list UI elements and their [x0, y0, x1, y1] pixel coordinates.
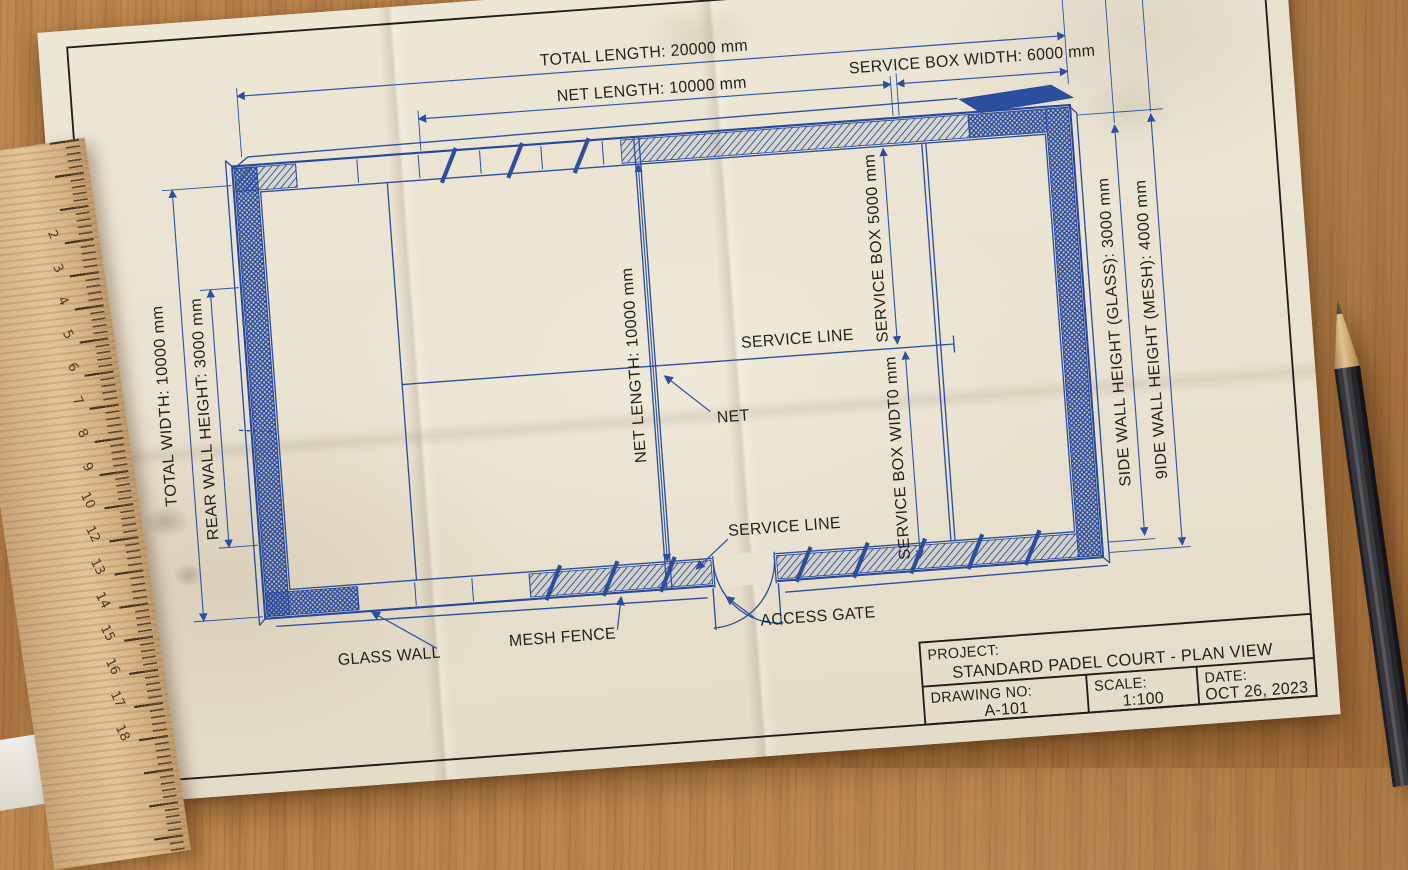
title-block-drawing-no-value: A-101 [984, 699, 1029, 720]
ruler-number: 17 [107, 689, 128, 711]
ruler-number: 6 [64, 360, 81, 374]
service-line-left [387, 183, 416, 581]
service-line-right [922, 143, 951, 541]
dim-total-length-label: TOTAL LENGTH: 20000 mm [539, 36, 748, 69]
callout-service-line-bottom: SERVICE LINE [728, 514, 842, 540]
ruler-number: 14 [92, 589, 113, 611]
ruler-number: 13 [87, 556, 108, 578]
dim-service-box-label: SERVICE BOX 5000 mm [860, 153, 892, 343]
title-block: PROJECT: STANDARD PADEL COURT - PLAN VIE… [919, 614, 1316, 725]
center-service-line [402, 344, 954, 385]
callout-leaders [356, 371, 755, 653]
desk-scene: { "drawing": { "dims": { "total_length":… [0, 0, 1408, 768]
ruler-number: 7 [69, 394, 86, 408]
ruler-number: 3 [49, 261, 66, 275]
callout-service-line-mid: SERVICE LINE [740, 326, 854, 352]
dim-total-width-label: TOTAL WIDTH: 10000 mm [148, 305, 180, 507]
pencil-body [1334, 366, 1408, 788]
ruler-number: 4 [54, 294, 71, 308]
title-block-scale-value: 1:100 [1122, 689, 1164, 710]
pencil-sharpened-wood [1327, 312, 1361, 371]
callout-net: NET [716, 406, 750, 427]
dim-service-box-width-mid-label: SERVICE BOX WIDT0 mm [881, 356, 914, 561]
ruler-number: 12 [82, 523, 103, 545]
blueprint-paper: .bl{stroke:#2b4f9e;fill:none;stroke-widt… [37, 0, 1340, 806]
ruler-number: 10 [77, 490, 98, 512]
callout-mesh-fence: MESH FENCE [508, 624, 616, 650]
ruler-number: 5 [59, 327, 76, 341]
dim-net-length-top-label: NET LENGTH: 10000 mm [556, 73, 747, 105]
ruler-number: 18 [112, 722, 133, 744]
ruler-number: 15 [97, 622, 118, 644]
callout-glass-wall: GLASS WALL [337, 643, 441, 669]
padel-court-plan-drawing: .bl{stroke:#2b4f9e;fill:none;stroke-widt… [37, 0, 1340, 806]
ruler-number: 2 [44, 228, 61, 242]
dim-rear-wall-height-label: REAR WALL HEIGHT: 3000 mm [187, 297, 222, 540]
callout-access-gate: ACCESS GATE [760, 603, 876, 630]
ruler-number: 8 [74, 427, 91, 441]
ruler-number: 9 [78, 460, 95, 474]
ruler-number: 16 [102, 655, 123, 677]
